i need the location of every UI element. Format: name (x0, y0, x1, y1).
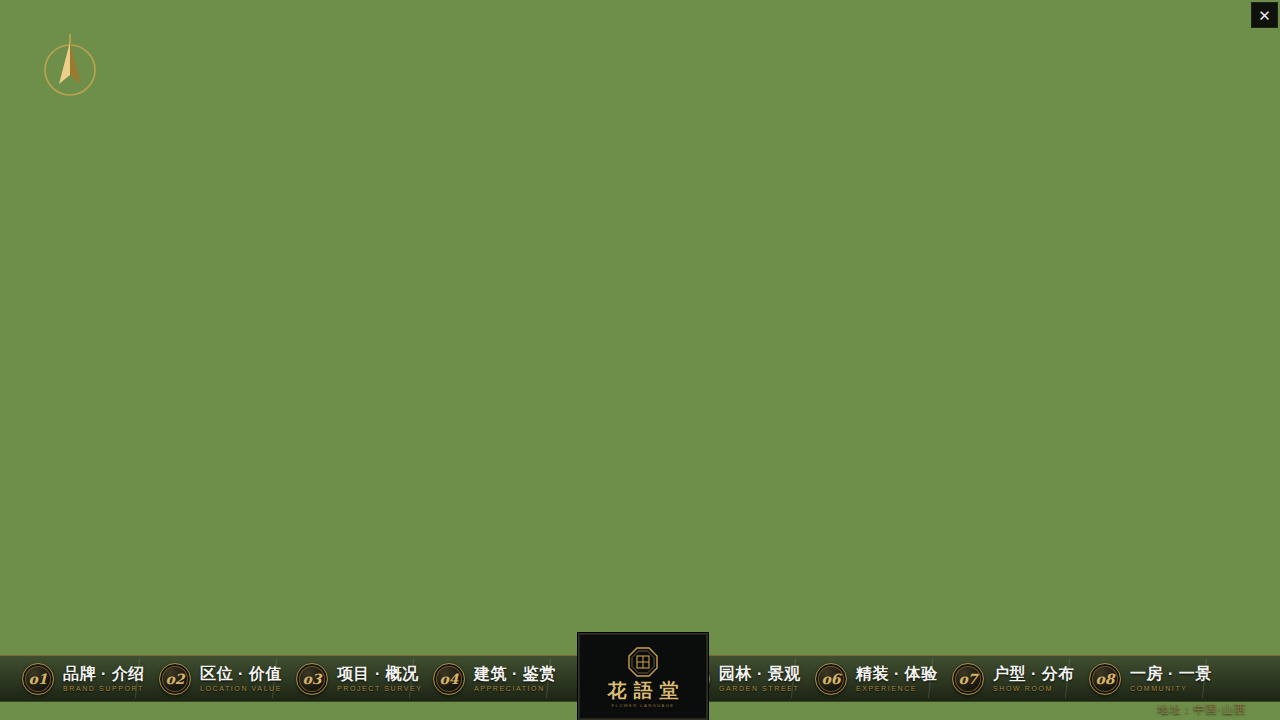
nav-label-zh: 精装 · 体验 (856, 666, 938, 682)
nav-item-architecture[interactable]: o4 建筑 · 鉴赏APPRECIATION (411, 656, 548, 701)
nav-label-en: SHOW ROOM (993, 685, 1075, 692)
nav-number-badge: o7 (952, 663, 984, 695)
sales-app-window: ✕ o1 品牌 · 介绍BRAND SUPPORT o2 区位 · 价值LOCA… (0, 0, 1280, 720)
nav-item-location-value[interactable]: o2 区位 · 价值LOCATION VALUE (137, 656, 274, 701)
nav-number-badge: o2 (159, 663, 191, 695)
brand-title: 花語堂 (608, 681, 686, 700)
close-button[interactable]: ✕ (1251, 2, 1278, 28)
project-address: 地址：中国·山西 (1157, 702, 1246, 717)
nav-item-decoration-experience[interactable]: o6 精装 · 体验EXPERIENCE (793, 656, 930, 701)
brand-subtitle: FLOWER LANGUAGE (612, 703, 675, 708)
nav-label-en: BRAND SUPPORT (63, 685, 145, 692)
nav-label-zh: 户型 · 分布 (993, 666, 1075, 682)
nav-item-room-view[interactable]: o8 一房 · 一景COMMUNITY (1067, 656, 1204, 701)
nav-label-en: COMMUNITY (1130, 685, 1212, 692)
nav-number-badge: o4 (433, 663, 465, 695)
nav-label-zh: 一房 · 一景 (1130, 666, 1212, 682)
nav-item-project-survey[interactable]: o3 项目 · 概况PROJECT SURVEY (274, 656, 411, 701)
nav-label-en: LOCATION VALUE (200, 685, 282, 692)
nav-number-badge: o1 (22, 663, 54, 695)
nav-label-zh: 项目 · 概况 (337, 666, 423, 682)
nav-label-zh: 区位 · 价值 (200, 666, 282, 682)
nav-label-en: EXPERIENCE (856, 685, 938, 692)
nav-label-zh: 园林 · 景观 (719, 666, 801, 682)
seal-emblem-icon (627, 646, 659, 678)
nav-number-badge: o6 (815, 663, 847, 695)
nav-label-zh: 品牌 · 介绍 (63, 666, 145, 682)
nav-label-en: APPRECIATION (474, 685, 556, 692)
nav-label-en: PROJECT SURVEY (337, 685, 423, 692)
nav-label-en: GARDEN STREET (719, 685, 801, 692)
brand-logo-panel[interactable]: 花語堂 FLOWER LANGUAGE (578, 633, 708, 720)
aerial-masterplan-render[interactable] (0, 0, 1280, 720)
north-compass-icon (40, 32, 100, 102)
nav-number-badge: o3 (296, 663, 328, 695)
nav-number-badge: o8 (1089, 663, 1121, 695)
nav-item-floorplan-distribution[interactable]: o7 户型 · 分布SHOW ROOM (930, 656, 1067, 701)
nav-item-brand-intro[interactable]: o1 品牌 · 介绍BRAND SUPPORT (0, 656, 137, 701)
nav-label-zh: 建筑 · 鉴赏 (474, 666, 556, 682)
